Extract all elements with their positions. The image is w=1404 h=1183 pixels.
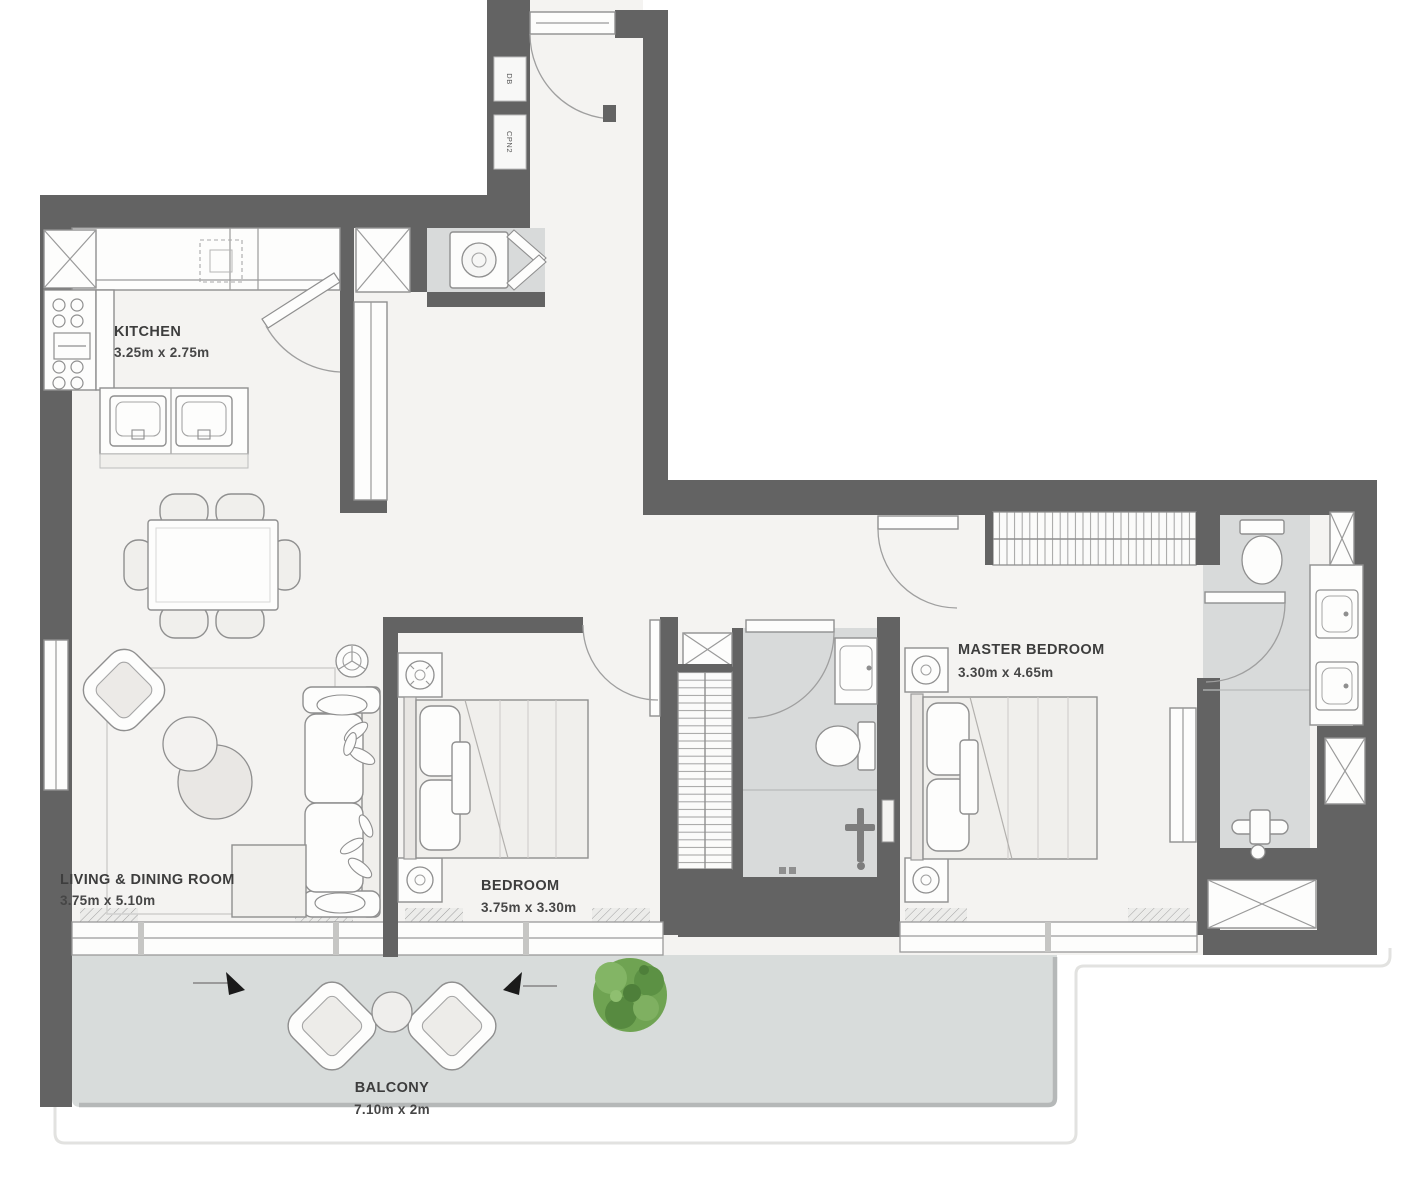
stove-side-panel <box>96 290 114 390</box>
dining-table <box>148 520 278 610</box>
masterbath-door-leaf <box>1205 592 1285 603</box>
wall-corridor-left <box>487 0 530 228</box>
master-door-leaf <box>878 516 958 529</box>
balcony-table <box>372 992 412 1032</box>
floor-drain <box>789 867 796 874</box>
living-room-dims: 3.75m x 5.10m <box>60 893 155 908</box>
bathroom-door-leaf <box>746 620 834 632</box>
table-lamp <box>912 656 940 684</box>
washer-drum <box>462 243 496 277</box>
window-mullion <box>138 922 144 955</box>
wall-bedroom-left <box>383 617 398 935</box>
floor-plan-page: DB CPN2 <box>0 0 1404 1183</box>
wall-niche <box>882 800 894 842</box>
faucet <box>867 666 872 671</box>
wall-pantry <box>340 228 354 513</box>
wall-laundry-bottom <box>427 292 545 307</box>
window-sill-hatch <box>905 908 967 922</box>
master-bed <box>911 694 1097 860</box>
floor-plan-drawing: DB CPN2 <box>0 0 1404 1183</box>
bedroom-label: BEDROOM <box>481 878 560 894</box>
window-mullion <box>1045 922 1051 952</box>
cpn-label: CPN2 <box>505 131 514 153</box>
wall-bathroom-right <box>877 617 900 937</box>
faucet <box>1344 612 1349 617</box>
balcony-label: BALCONY <box>355 1080 430 1096</box>
db-label: DB <box>505 73 514 84</box>
wall-bottom-right <box>1203 930 1377 955</box>
wall-wardrobe-bath-divider <box>732 628 743 877</box>
coffee-table-small <box>163 717 217 771</box>
toilet-tank <box>1240 520 1284 534</box>
sofa-back <box>362 687 380 917</box>
wall-bath-block-bottom <box>678 877 900 937</box>
headboard <box>911 694 923 860</box>
kitchen-counter <box>72 228 340 290</box>
window-sill-hatch <box>80 908 138 922</box>
floor-drain <box>779 867 786 874</box>
wall-kitchen-top <box>40 195 530 228</box>
tree <box>593 958 667 1032</box>
wall-entry-jamb <box>615 10 643 38</box>
side-table <box>336 645 368 677</box>
window-sill-hatch <box>405 908 463 922</box>
window-sill-hatch <box>1128 908 1190 922</box>
wall-bedroom-right <box>660 617 678 935</box>
toilet <box>816 722 875 770</box>
faucet <box>1344 684 1349 689</box>
balcony-floor <box>72 955 1057 1107</box>
wall-bedroom-top <box>383 617 583 633</box>
bedroom-door-leaf <box>650 620 660 716</box>
ottoman <box>232 845 306 917</box>
kitchen-dims: 3.25m x 2.75m <box>114 345 209 360</box>
window-mullion <box>333 922 339 955</box>
kitchen-label: KITCHEN <box>114 324 181 340</box>
window-sill-hatch <box>592 908 650 922</box>
toilet-bowl <box>816 726 860 766</box>
master-bedroom-dims: 3.30m x 4.65m <box>958 665 1053 680</box>
folded-throw <box>452 742 470 814</box>
living-room-label: LIVING & DINING ROOM <box>60 872 235 888</box>
master-bedroom-label: MASTER BEDROOM <box>958 642 1105 658</box>
wall-pantry-cap <box>340 500 387 513</box>
bedroom-dims: 3.75m x 3.30m <box>481 900 576 915</box>
wall-wing-top <box>643 480 1377 515</box>
entry-door-stop <box>603 105 616 122</box>
balcony-dims: 7.10m x 2m <box>354 1102 430 1117</box>
table-lamp <box>913 867 939 893</box>
wall-shaft-divider <box>410 228 427 292</box>
table-lamp <box>407 867 433 893</box>
folded-throw <box>960 740 978 814</box>
toilet <box>1240 520 1284 584</box>
bed <box>404 697 588 859</box>
island-overhang <box>100 454 248 468</box>
headboard <box>404 697 416 859</box>
wall-corridor-right <box>643 10 668 515</box>
toilet-bowl <box>1242 536 1282 584</box>
window-mullion <box>523 922 529 955</box>
